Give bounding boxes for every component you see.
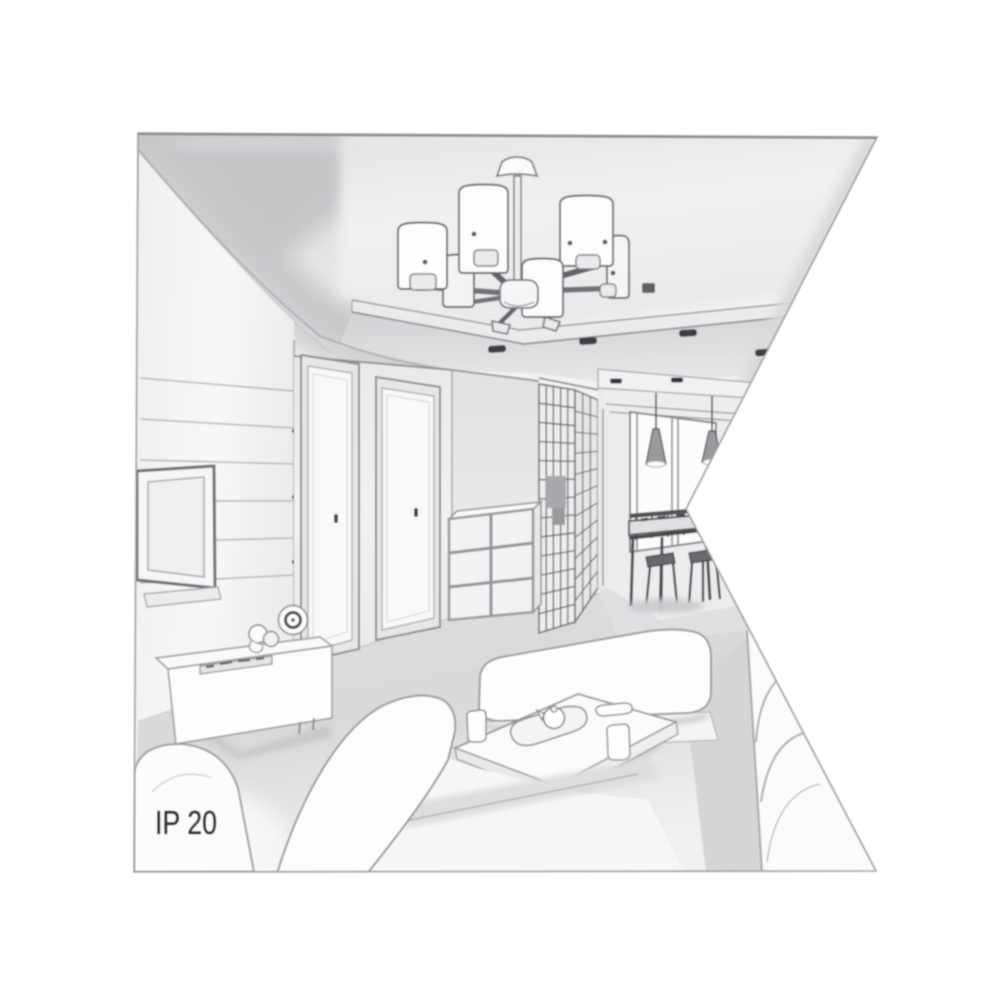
svg-text:IP 20: IP 20 (155, 804, 217, 841)
